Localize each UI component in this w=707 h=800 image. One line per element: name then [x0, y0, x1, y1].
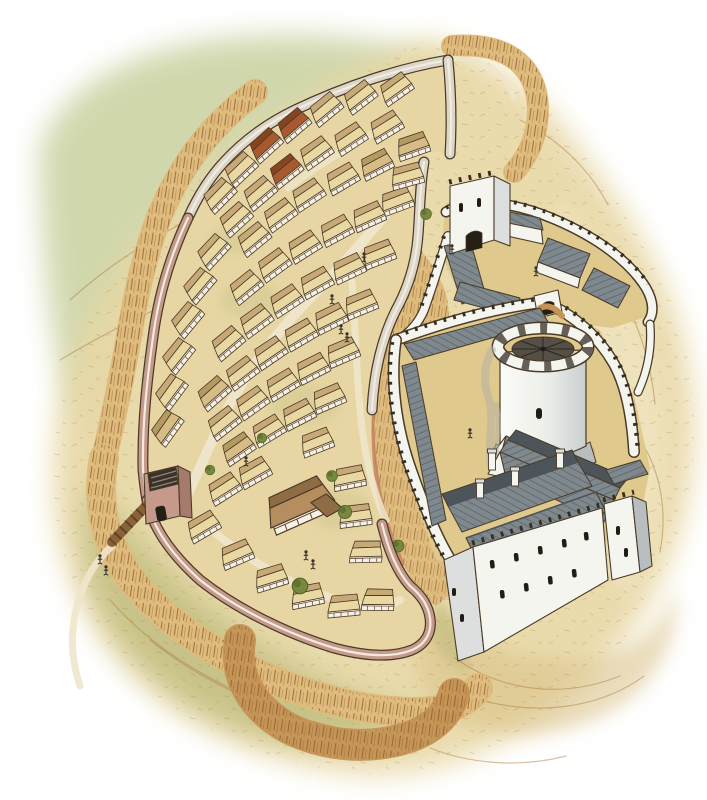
illustration-canvas	[0, 0, 707, 800]
tree	[338, 505, 351, 518]
town-wall-northeast	[448, 60, 451, 154]
castle-town-illustration	[0, 0, 707, 800]
tree	[292, 578, 308, 594]
outer-gatehouse	[449, 172, 510, 254]
west-gate-tower	[144, 466, 192, 524]
tree	[421, 209, 432, 220]
town-house	[328, 594, 360, 618]
tree	[257, 433, 267, 443]
keep-roof-interior	[512, 337, 574, 361]
tree	[327, 471, 338, 482]
tree	[205, 465, 215, 475]
town-house	[349, 539, 383, 565]
